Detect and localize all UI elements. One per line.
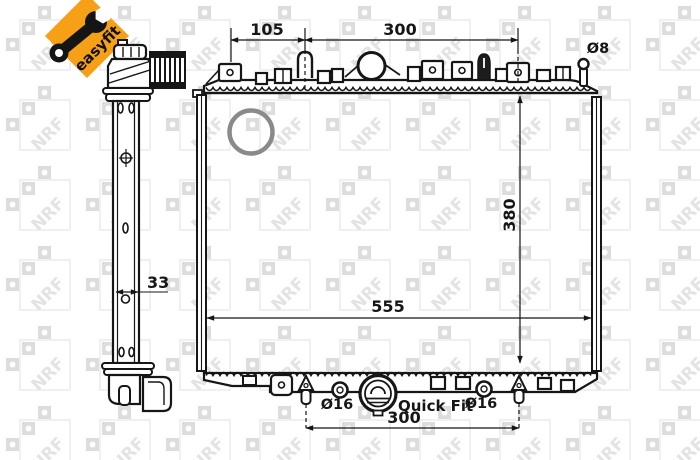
label-outlet-left-diameter: Ø16 [321, 397, 354, 413]
dim-300-top-label: 300 [383, 20, 416, 39]
dim-380-label: 380 [500, 198, 519, 231]
drawing-svg: NRF easyfit [0, 0, 700, 460]
dim-105-label: 105 [250, 20, 283, 39]
label-quick-fit: Quick Fit [398, 397, 473, 415]
filler-neck-opening [358, 53, 385, 80]
label-outlet-right-diameter: Ø16 [465, 396, 498, 412]
dim-555-label: 555 [371, 297, 404, 316]
radiator-technical-drawing: NRF easyfit [0, 0, 700, 460]
dim-33-label: 33 [147, 273, 169, 292]
dim-pin-diameter-label: Ø8 [587, 41, 609, 57]
hose-connector-hatch [150, 52, 185, 88]
mounting-pin [580, 68, 587, 86]
